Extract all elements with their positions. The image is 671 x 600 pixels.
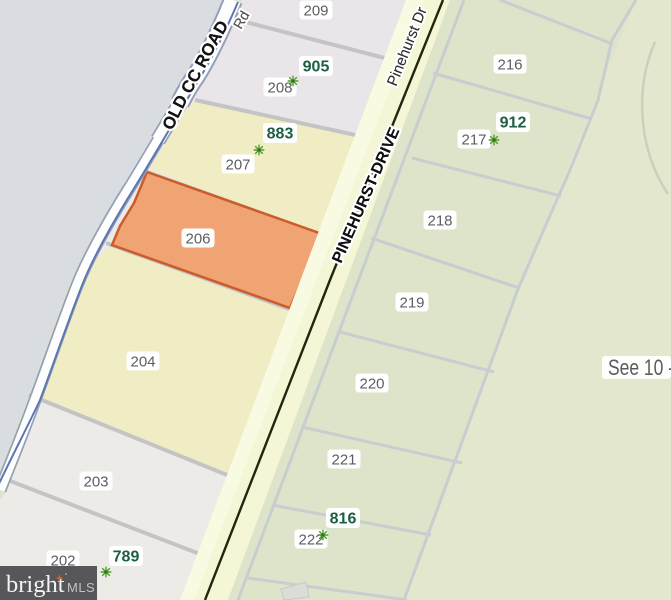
svg-text:219: 219 (399, 294, 424, 311)
svg-text:207: 207 (225, 156, 250, 173)
svg-text:204: 204 (130, 353, 155, 370)
svg-text:789: 789 (113, 549, 140, 566)
svg-text:218: 218 (427, 212, 452, 229)
svg-text:222: 222 (298, 531, 323, 548)
svg-text:883: 883 (267, 126, 294, 143)
svg-text:816: 816 (330, 511, 357, 528)
svg-text:203: 203 (83, 473, 108, 490)
svg-text:MLS: MLS (67, 580, 95, 595)
svg-text:912: 912 (500, 115, 527, 132)
svg-text:220: 220 (359, 375, 384, 392)
svg-text:bright: bright (6, 571, 65, 598)
svg-text:221: 221 (331, 451, 356, 468)
svg-text:217: 217 (461, 131, 486, 148)
svg-text:905: 905 (303, 59, 330, 76)
svg-text:206: 206 (185, 230, 210, 247)
svg-text:216: 216 (497, 56, 522, 73)
svg-text:See 10 -: See 10 - (608, 355, 671, 380)
svg-text:208: 208 (267, 79, 292, 96)
svg-text:209: 209 (303, 2, 328, 19)
